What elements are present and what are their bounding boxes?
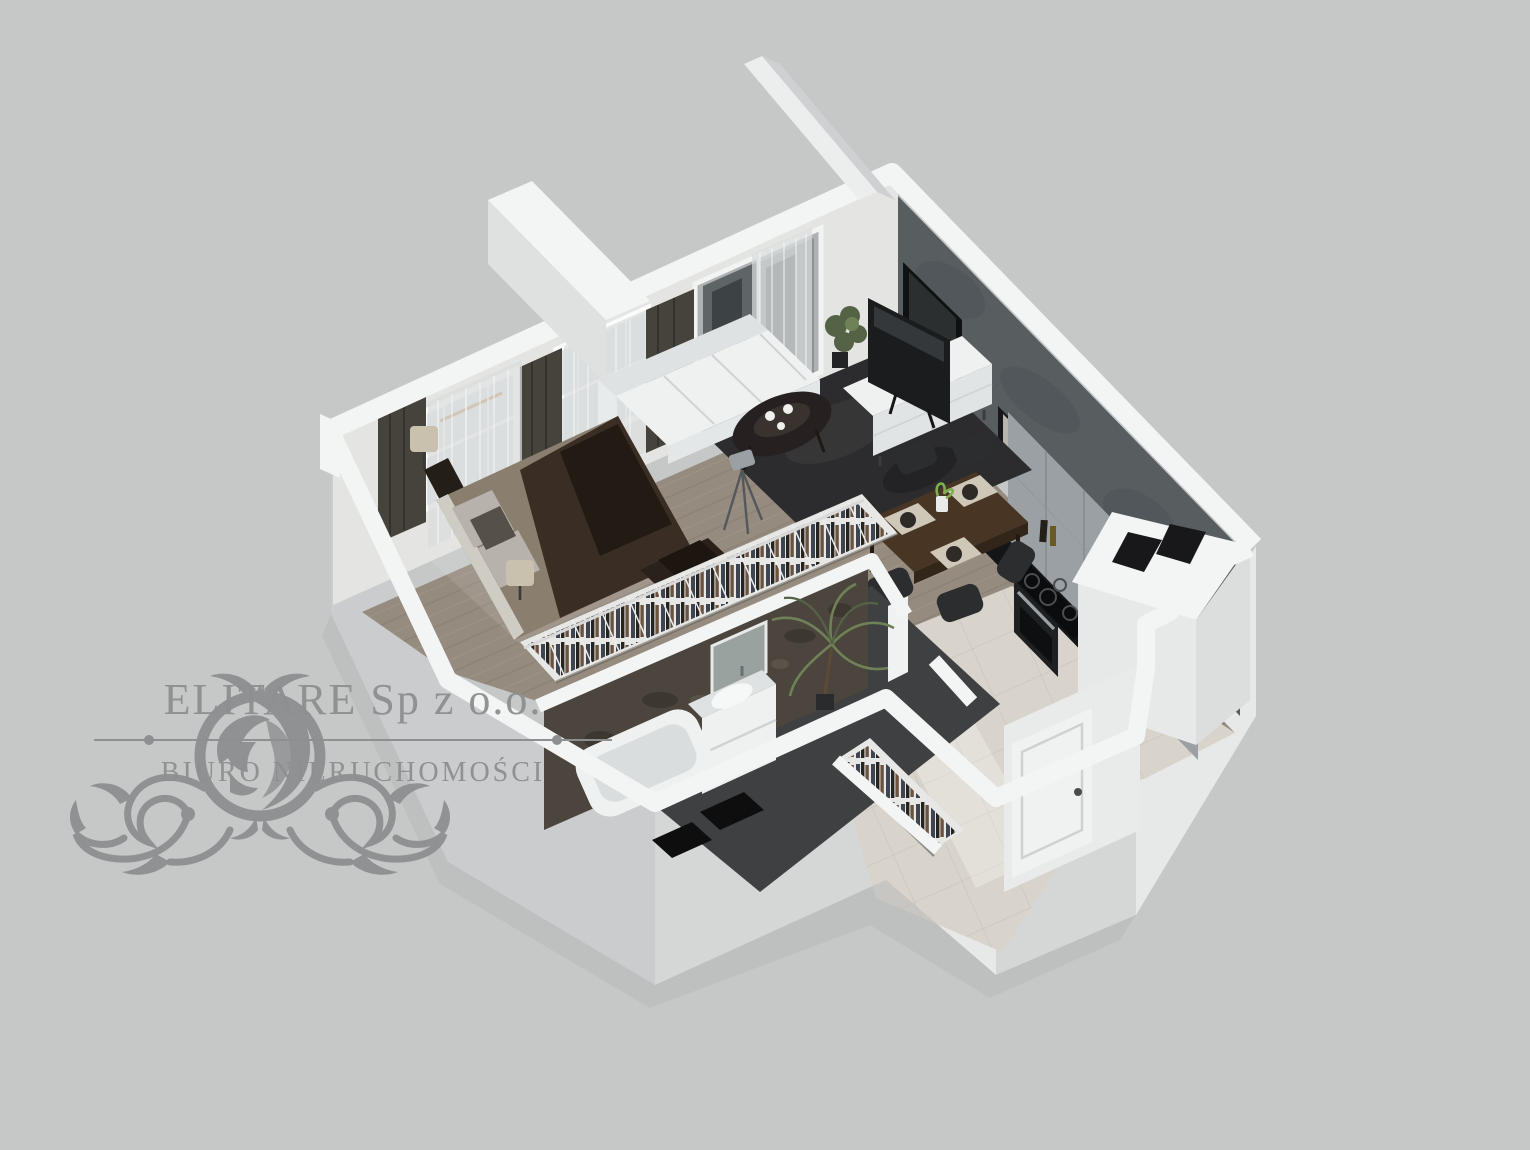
floor-plan-render [0,0,1530,1150]
watermark-tagline: BIURO NIERUCHOMOŚCI [70,757,636,789]
agency-watermark: ELITARE Sp z o.o. BIURO NIERUCHOMOŚCI [70,668,636,789]
watermark-company-name: ELITARE Sp z o.o. [70,674,636,725]
floor-plan-page: ELITARE Sp z o.o. BIURO NIERUCHOMOŚCI [0,0,1530,1150]
watermark-divider [94,733,612,747]
balcony-partition-wall [744,56,895,200]
